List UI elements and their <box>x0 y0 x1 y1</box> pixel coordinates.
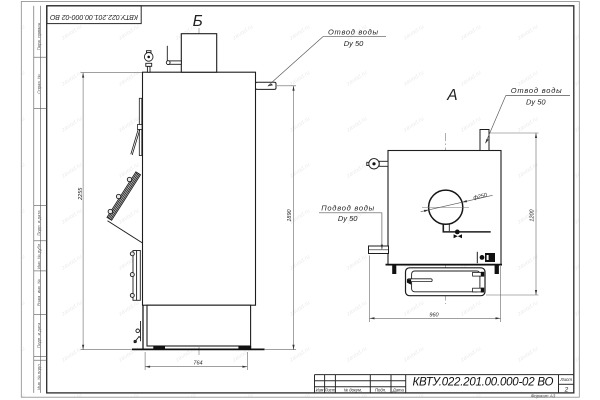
svg-text:Подп. и дата: Подп. и дата <box>36 210 41 236</box>
svg-text:Отвод воды: Отвод воды <box>328 28 378 37</box>
svg-text:Подвод воды: Подвод воды <box>321 203 374 212</box>
svg-text:Dy 50: Dy 50 <box>338 214 358 223</box>
svg-text:960: 960 <box>429 312 439 318</box>
svg-text:Отвод воды: Отвод воды <box>511 86 562 95</box>
svg-text:Б: Б <box>193 13 203 30</box>
svg-text:2255: 2255 <box>78 187 84 201</box>
svg-text:1200: 1200 <box>530 208 536 221</box>
svg-text:Справ. №: Справ. № <box>36 74 41 94</box>
svg-text:КВТУ.022.201.00.000-02 ВО: КВТУ.022.201.00.000-02 ВО <box>49 13 138 20</box>
svg-text:А: А <box>446 87 457 104</box>
svg-text:Перв. примен.: Перв. примен. <box>36 22 41 51</box>
svg-text:Дата: Дата <box>392 388 405 393</box>
svg-text:Формат А3: Формат А3 <box>531 393 556 398</box>
svg-text:Подп.: Подп. <box>375 388 386 393</box>
svg-text:1890: 1890 <box>287 208 293 221</box>
svg-text:Подп. и дата: Подп. и дата <box>36 322 41 348</box>
svg-text:Лист: Лист <box>559 377 572 382</box>
svg-text:Инв. № дубл.: Инв. № дубл. <box>36 242 41 269</box>
svg-text:2: 2 <box>564 386 569 393</box>
svg-text:Лист: Лист <box>324 388 336 393</box>
svg-text:Взам. инв. №: Взам. инв. № <box>36 279 41 306</box>
svg-text:764: 764 <box>193 361 202 367</box>
svg-text:КВТУ.022.201.00.000-02 ВО: КВТУ.022.201.00.000-02 ВО <box>413 377 554 389</box>
svg-text:Инв. № подл.: Инв. № подл. <box>36 363 41 390</box>
svg-text:Dy 50: Dy 50 <box>526 98 546 107</box>
svg-text:Dy 50: Dy 50 <box>344 39 364 48</box>
svg-text:Изм: Изм <box>316 388 324 393</box>
svg-text:№ докум.: № докум. <box>344 388 362 393</box>
